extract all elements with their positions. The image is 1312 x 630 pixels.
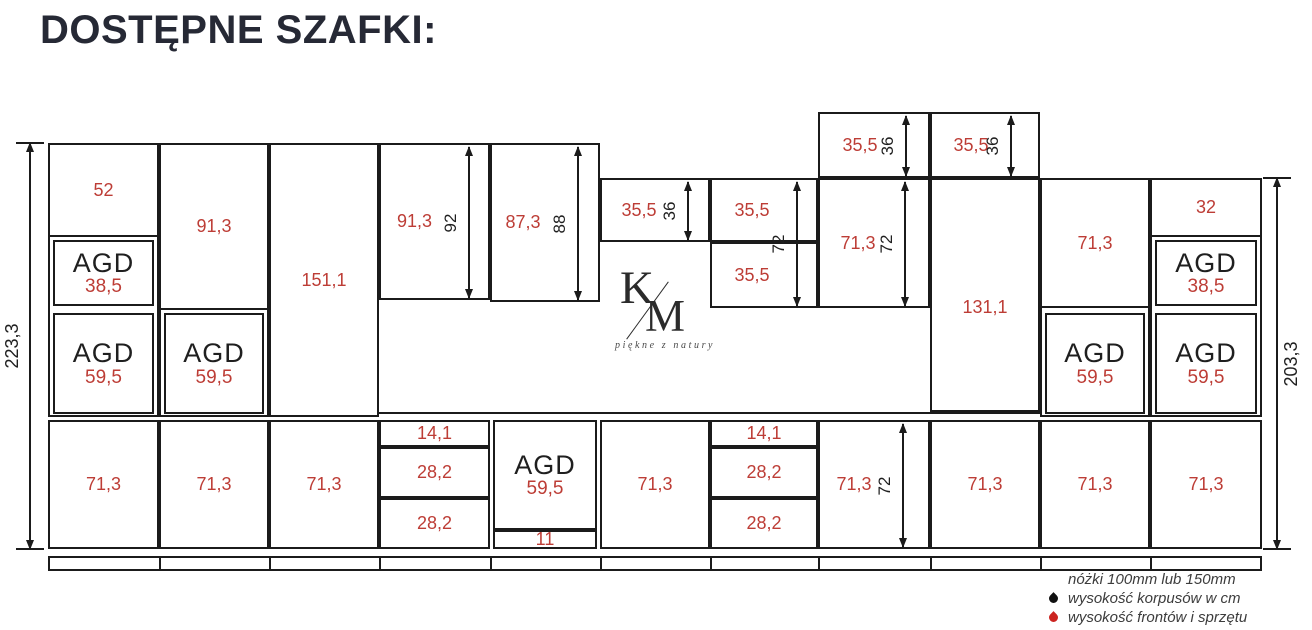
cabinet-box: 71,3 bbox=[930, 420, 1040, 549]
cabinet-box: 35,5 bbox=[710, 242, 818, 308]
cabinet-label: AGD59,5 bbox=[1064, 339, 1126, 387]
cabinet-label: AGD59,5 bbox=[1175, 339, 1237, 387]
dimension-label: 72 bbox=[878, 220, 896, 268]
dimension-label: 36 bbox=[661, 187, 679, 235]
cabinet-box: 71,3 bbox=[48, 420, 159, 549]
cabinet-box: 35,5 bbox=[818, 112, 930, 178]
cabinet-box: 71,3 bbox=[159, 420, 269, 549]
cabinet-label: AGD38,5 bbox=[1175, 249, 1237, 297]
dimension-arrow bbox=[468, 147, 470, 298]
dimension-label: 92 bbox=[442, 199, 460, 247]
cabinet-box: 91,3 bbox=[159, 143, 269, 310]
cabinet-box: 71,3 bbox=[600, 420, 710, 549]
cabinet-label: 35,5 bbox=[621, 201, 656, 220]
legend-row-front: wysokość frontów i sprzętu bbox=[1046, 608, 1247, 627]
cabinet-box: 91,3 bbox=[379, 143, 490, 300]
plinth-divider bbox=[930, 558, 932, 569]
cabinet-label: AGD59,5 bbox=[183, 339, 245, 387]
plinth-divider bbox=[710, 558, 712, 569]
red-drop-icon bbox=[1046, 613, 1068, 622]
cabinet-label: 91,3 bbox=[397, 212, 432, 231]
cabinet-box: 52 bbox=[48, 143, 159, 237]
cabinet-box: AGD38,5 bbox=[1155, 240, 1257, 306]
legend-row-korpus: wysokość korpusów w cm bbox=[1046, 589, 1247, 608]
cabinet-box: 14,1 bbox=[710, 420, 818, 447]
cabinet-box: 28,2 bbox=[710, 498, 818, 549]
page: DOSTĘPNE SZAFKI: 52AGD38,5AGD59,571,391,… bbox=[0, 0, 1312, 630]
cabinet-box: 151,1 bbox=[269, 143, 379, 417]
dimension-arrow bbox=[577, 147, 579, 300]
dimension-label: 72 bbox=[876, 462, 894, 510]
cabinet-box: 14,1 bbox=[379, 420, 490, 447]
overall-dimension-label: 203,3 bbox=[1282, 340, 1300, 388]
plinth-divider bbox=[1040, 558, 1042, 569]
cabinet-box: 71,3 bbox=[1150, 420, 1262, 549]
cabinet-box: AGD38,5 bbox=[53, 240, 154, 306]
plinth bbox=[48, 556, 1262, 571]
cabinet-label: 28,2 bbox=[746, 514, 781, 533]
dimension-label: 88 bbox=[551, 200, 569, 248]
dimension-label: 36 bbox=[879, 122, 897, 170]
cabinet-box: 71,3 bbox=[818, 420, 930, 549]
legend: nóżki 100mm lub 150mm wysokość korpusów … bbox=[1046, 570, 1247, 627]
cabinet-label: 28,2 bbox=[746, 463, 781, 482]
dimension-label: 36 bbox=[984, 122, 1002, 170]
cabinet-box: 71,3 bbox=[1040, 420, 1150, 549]
dimension-arrow bbox=[904, 182, 906, 306]
dimension-arrow bbox=[687, 182, 689, 240]
black-drop-icon bbox=[1046, 594, 1068, 603]
cabinet-box: 71,3 bbox=[1040, 178, 1150, 308]
cabinet-box: 131,1 bbox=[930, 178, 1040, 412]
logo-letter-m: M bbox=[645, 294, 685, 339]
cabinet-label: 35,5 bbox=[734, 201, 769, 220]
counter-line bbox=[379, 412, 1040, 414]
cabinet-label: 71,3 bbox=[1188, 475, 1223, 494]
cabinet-box: 32 bbox=[1150, 178, 1262, 237]
dimension-tick bbox=[1263, 548, 1291, 550]
cabinet-label: 11 bbox=[536, 530, 555, 549]
cabinet-label: 91,3 bbox=[196, 217, 231, 236]
cabinet-label: 71,3 bbox=[196, 475, 231, 494]
cabinet-label: 32 bbox=[1196, 198, 1216, 217]
dimension-arrow bbox=[902, 424, 904, 547]
cabinet-label: 28,2 bbox=[417, 463, 452, 482]
cabinet-label: 87,3 bbox=[505, 213, 540, 232]
plinth-divider bbox=[1150, 558, 1152, 569]
plinth-divider bbox=[379, 558, 381, 569]
cabinet-box: 87,3 bbox=[490, 143, 600, 302]
cabinet-box: 28,2 bbox=[379, 447, 490, 498]
cabinet-box: AGD59,5 bbox=[493, 420, 597, 530]
cabinet-label: 71,3 bbox=[86, 475, 121, 494]
cabinet-box: AGD59,5 bbox=[1155, 313, 1257, 414]
legend-row-feet: nóżki 100mm lub 150mm bbox=[1046, 570, 1247, 589]
overall-dimension-label: 223,3 bbox=[3, 322, 21, 370]
cabinet-label: 35,5 bbox=[842, 136, 877, 155]
legend-front-text: wysokość frontów i sprzętu bbox=[1068, 609, 1247, 626]
cabinet-label: 14,1 bbox=[746, 424, 781, 443]
plinth-divider bbox=[818, 558, 820, 569]
overall-dimension-arrow bbox=[29, 143, 31, 549]
dimension-tick bbox=[16, 142, 44, 144]
brand-logo: K M piękne z natury bbox=[606, 266, 716, 356]
legend-korpus-text: wysokość korpusów w cm bbox=[1068, 590, 1241, 607]
plinth-divider bbox=[159, 558, 161, 569]
cabinet-label: 28,2 bbox=[417, 514, 452, 533]
cabinet-box: 71,3 bbox=[269, 420, 379, 549]
cabinet-label: 131,1 bbox=[962, 298, 1007, 317]
cabinet-box: 11 bbox=[493, 530, 597, 549]
dimension-arrow bbox=[796, 182, 798, 306]
plinth-divider bbox=[600, 558, 602, 569]
cabinet-label: 52 bbox=[93, 181, 113, 200]
logo-tagline: piękne z natury bbox=[615, 340, 715, 351]
plinth-divider bbox=[269, 558, 271, 569]
cabinet-box: 71,3 bbox=[818, 178, 930, 308]
cabinet-label: AGD59,5 bbox=[73, 339, 135, 387]
cabinet-label: 71,3 bbox=[1077, 234, 1112, 253]
cabinet-label: 14,1 bbox=[417, 424, 452, 443]
dimension-arrow bbox=[905, 116, 907, 176]
dimension-tick bbox=[16, 548, 44, 550]
cabinet-label: 71,3 bbox=[306, 475, 341, 494]
overall-dimension-arrow bbox=[1276, 178, 1278, 549]
cabinet-box: 28,2 bbox=[710, 447, 818, 498]
cabinet-box: AGD59,5 bbox=[53, 313, 154, 414]
cabinet-box: AGD59,5 bbox=[164, 313, 264, 414]
dimension-label: 72 bbox=[770, 220, 788, 268]
plinth-divider bbox=[490, 558, 492, 569]
cabinet-box: AGD59,5 bbox=[1045, 313, 1145, 414]
dimension-arrow bbox=[1010, 116, 1012, 176]
cabinet-label: AGD59,5 bbox=[514, 451, 576, 499]
cabinet-label: 151,1 bbox=[301, 271, 346, 290]
cabinet-box: 28,2 bbox=[379, 498, 490, 549]
cabinet-label: 71,3 bbox=[637, 475, 672, 494]
cabinet-label: 71,3 bbox=[967, 475, 1002, 494]
cabinet-box: 35,5 bbox=[600, 178, 710, 242]
dimension-tick bbox=[1263, 177, 1291, 179]
legend-feet-text: nóżki 100mm lub 150mm bbox=[1068, 571, 1236, 588]
cabinet-label: 71,3 bbox=[836, 475, 871, 494]
cabinet-label: 71,3 bbox=[1077, 475, 1112, 494]
cabinet-box: 35,5 bbox=[710, 178, 818, 242]
cabinet-label: 71,3 bbox=[840, 234, 875, 253]
cabinet-label: AGD38,5 bbox=[73, 249, 135, 297]
cabinet-label: 35,5 bbox=[734, 266, 769, 285]
